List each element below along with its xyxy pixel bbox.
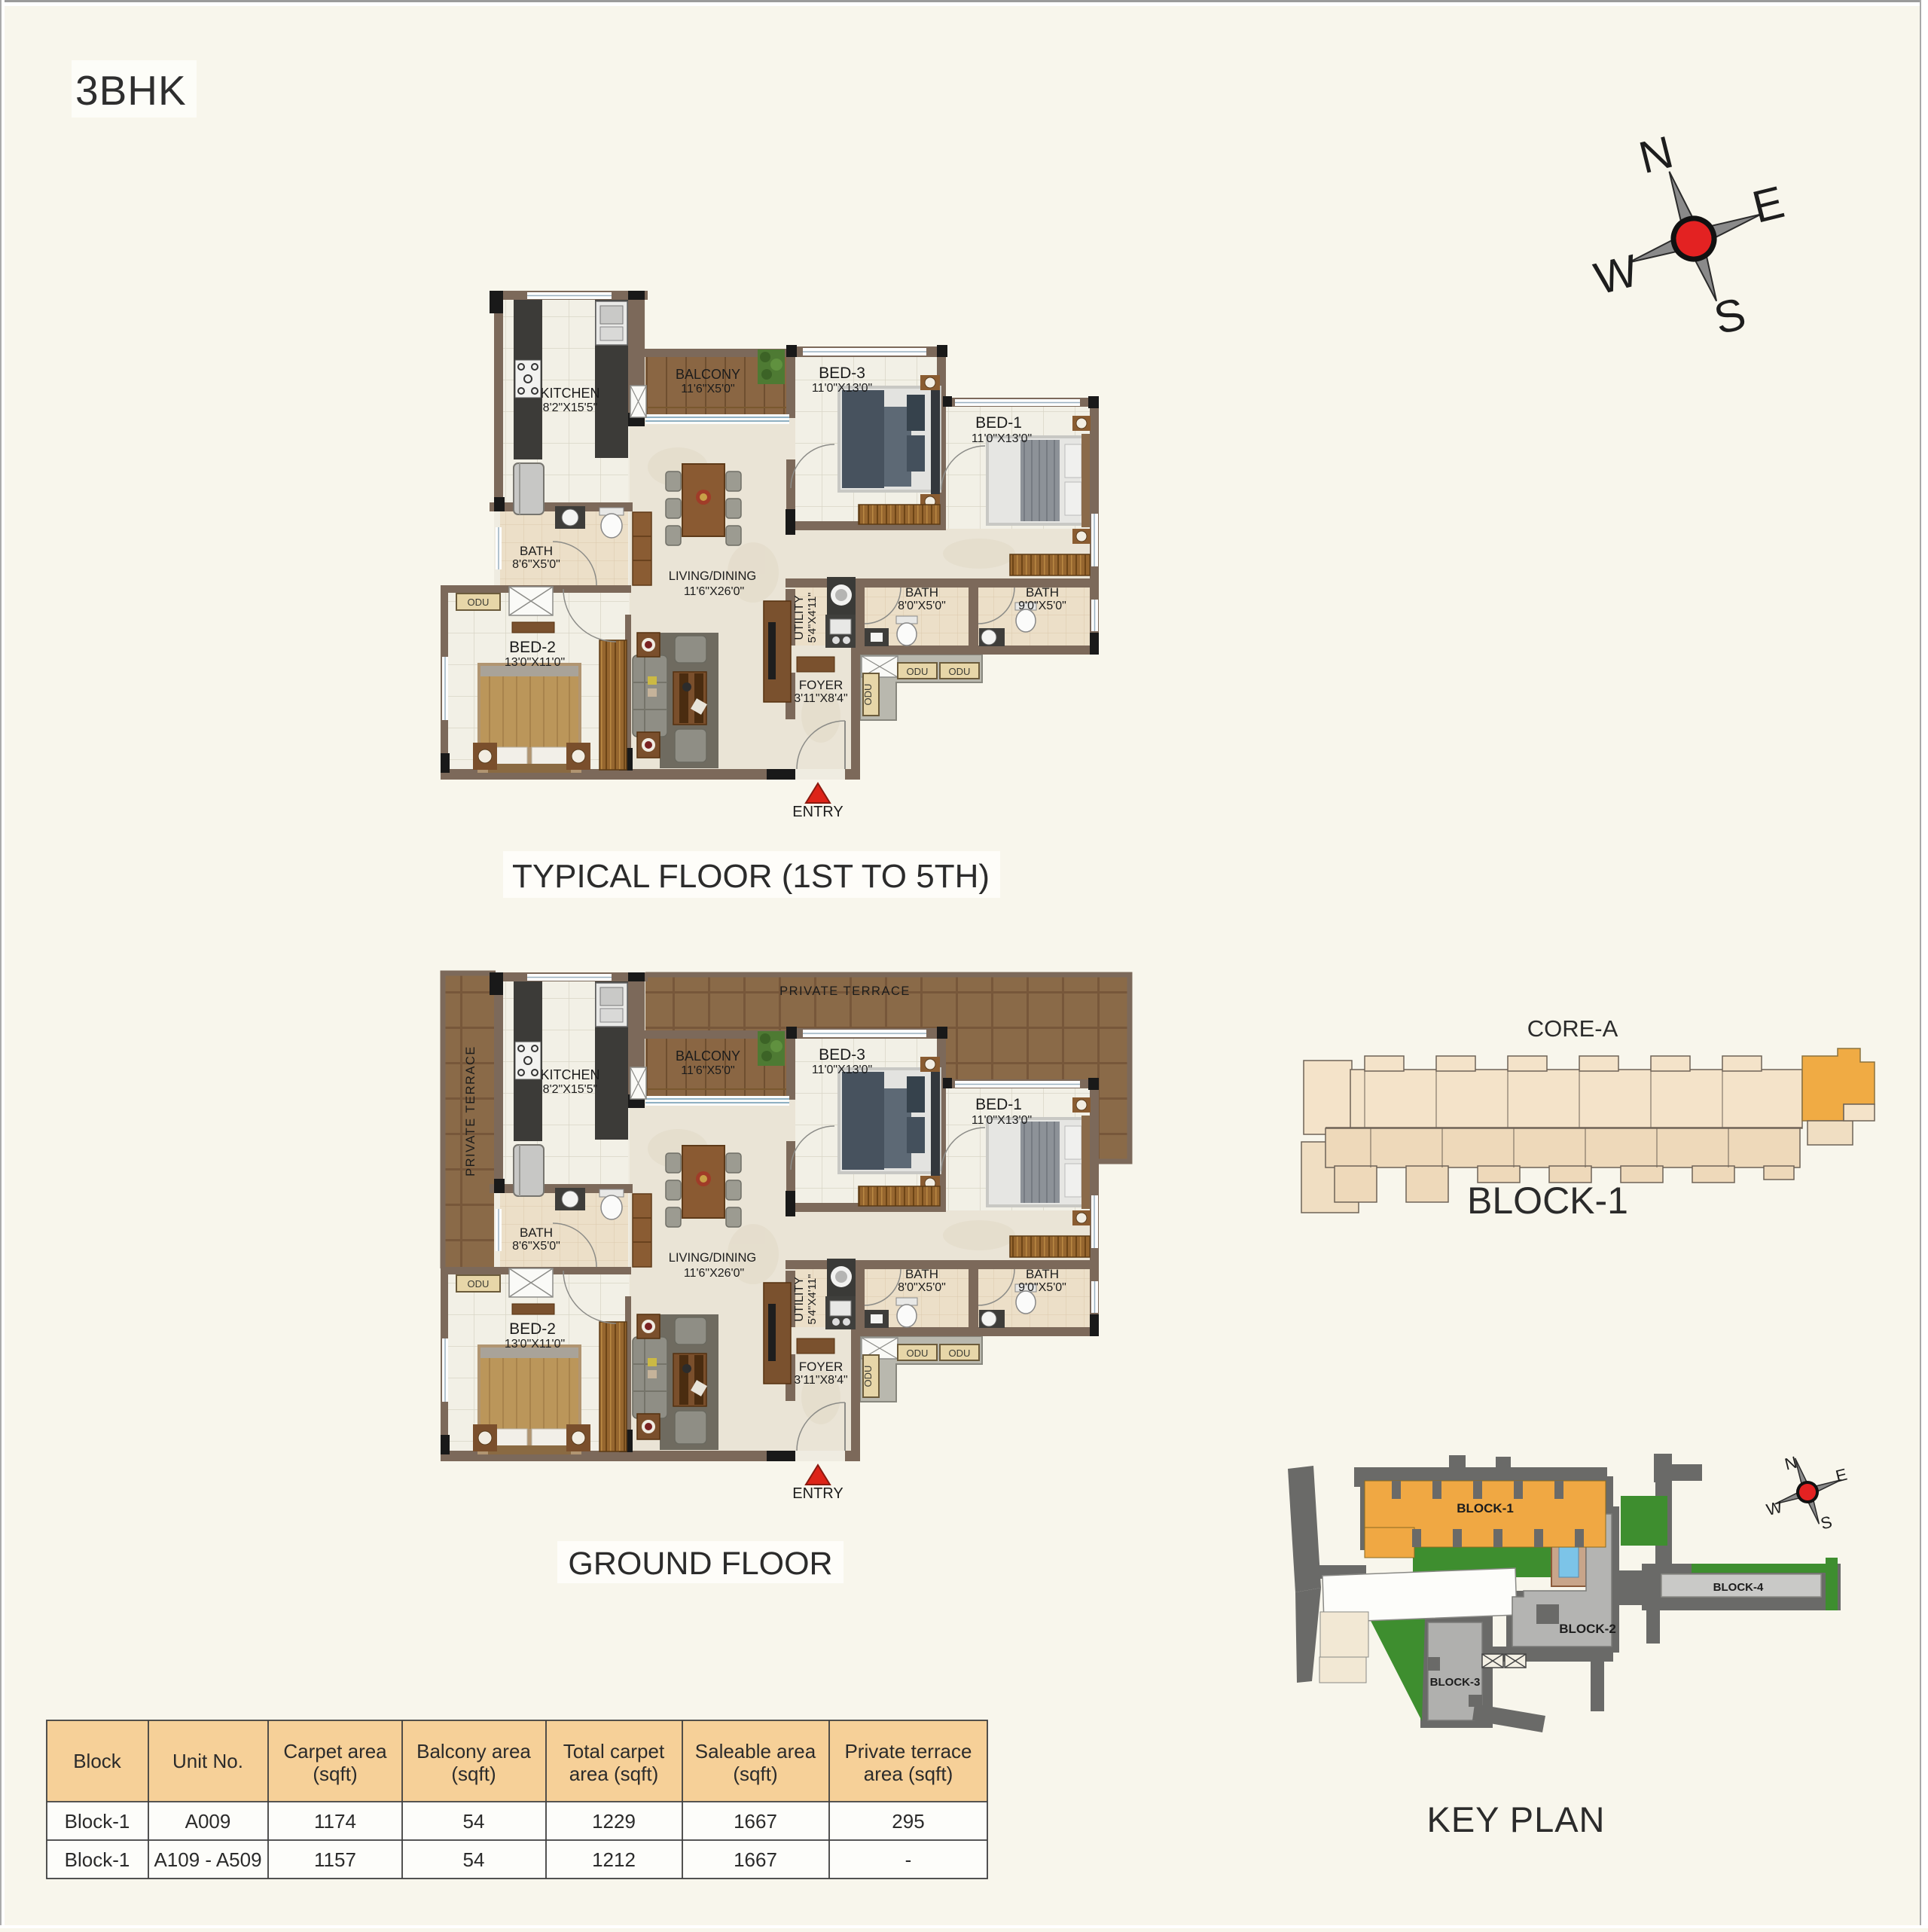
svg-text:PRIVATE TERRACE: PRIVATE TERRACE	[779, 984, 911, 998]
svg-text:BLOCK-4: BLOCK-4	[1713, 1581, 1764, 1594]
svg-text:area (sqft): area (sqft)	[864, 1763, 953, 1785]
svg-text:3BHK: 3BHK	[75, 67, 187, 114]
svg-text:1212: 1212	[592, 1848, 636, 1871]
svg-text:Block-1: Block-1	[65, 1848, 130, 1871]
svg-text:A009: A009	[185, 1810, 231, 1833]
svg-text:Carpet area: Carpet area	[283, 1740, 387, 1763]
svg-text:PRIVATE TERRACE: PRIVATE TERRACE	[464, 1045, 477, 1177]
svg-text:BLOCK-1: BLOCK-1	[1457, 1501, 1514, 1515]
svg-text:1174: 1174	[314, 1810, 356, 1833]
svg-text:Saleable area: Saleable area	[695, 1740, 816, 1763]
svg-text:Block: Block	[73, 1750, 122, 1772]
svg-text:Balcony area: Balcony area	[416, 1740, 531, 1763]
svg-text:295: 295	[892, 1810, 924, 1833]
svg-text:Private terrace: Private terrace	[844, 1740, 972, 1763]
svg-text:1667: 1667	[734, 1810, 777, 1833]
svg-text:Block-1: Block-1	[65, 1810, 130, 1833]
svg-text:1229: 1229	[592, 1810, 636, 1833]
svg-text:-: -	[905, 1848, 912, 1871]
svg-text:BLOCK-1: BLOCK-1	[1467, 1180, 1628, 1222]
svg-text:54: 54	[463, 1810, 485, 1833]
svg-text:(sqft): (sqft)	[451, 1763, 496, 1785]
svg-text:BLOCK-2: BLOCK-2	[1559, 1622, 1616, 1636]
svg-text:(sqft): (sqft)	[733, 1763, 777, 1785]
svg-text:Unit No.: Unit No.	[172, 1750, 243, 1772]
svg-text:1157: 1157	[314, 1848, 356, 1871]
svg-text:1667: 1667	[734, 1848, 777, 1871]
svg-text:KEY PLAN: KEY PLAN	[1426, 1799, 1605, 1839]
svg-text:54: 54	[463, 1848, 485, 1871]
svg-text:TYPICAL FLOOR (1ST TO 5TH): TYPICAL FLOOR (1ST TO 5TH)	[512, 858, 990, 895]
svg-text:GROUND FLOOR: GROUND FLOOR	[568, 1546, 832, 1582]
svg-text:BLOCK-3: BLOCK-3	[1430, 1676, 1481, 1689]
svg-text:A109 - A509: A109 - A509	[154, 1848, 261, 1871]
svg-text:Total carpet: Total carpet	[563, 1740, 665, 1763]
svg-text:CORE-A: CORE-A	[1527, 1015, 1618, 1042]
svg-text:area (sqft): area (sqft)	[569, 1763, 659, 1785]
svg-text:(sqft): (sqft)	[313, 1763, 357, 1785]
